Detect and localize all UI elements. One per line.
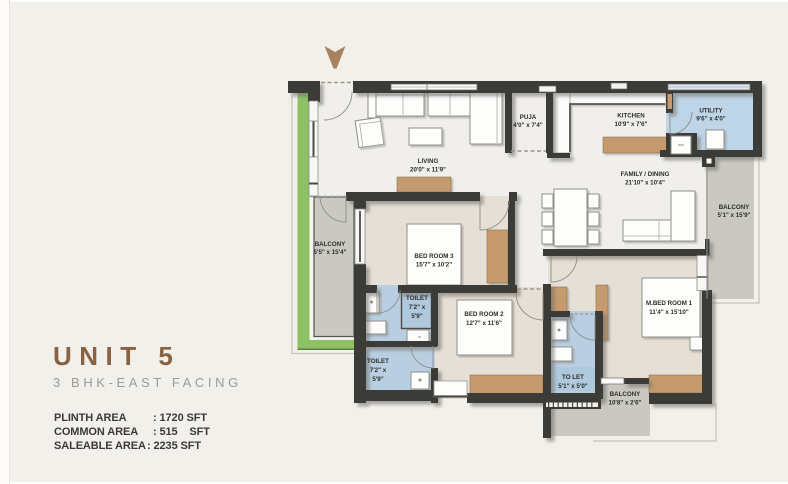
svg-text:10'9" x 7'6": 10'9" x 7'6" xyxy=(615,121,648,128)
svg-text:KITCHEN: KITCHEN xyxy=(617,113,645,120)
svg-text:FAMILY / DINING: FAMILY / DINING xyxy=(621,171,670,178)
svg-text:5'5" x 15'4": 5'5" x 15'4" xyxy=(314,249,347,256)
svg-text:10'8" x 2'6": 10'8" x 2'6" xyxy=(609,400,642,407)
svg-text:BED ROOM 2: BED ROOM 2 xyxy=(464,311,504,318)
svg-text:9'6" x 4'0": 9'6" x 4'0" xyxy=(696,116,726,123)
svg-text:BALCONY: BALCONY xyxy=(610,391,641,398)
svg-text:11'4" x 15'10": 11'4" x 15'10" xyxy=(649,309,689,316)
svg-text:12'7" x 11'6": 12'7" x 11'6" xyxy=(466,320,502,327)
svg-text:TO LET: TO LET xyxy=(562,374,584,381)
svg-text:15'7" x 10'2": 15'7" x 10'2" xyxy=(416,262,452,269)
svg-text:TOILET: TOILET xyxy=(367,358,389,365)
svg-text:20'0" x 11'9": 20'0" x 11'9" xyxy=(410,167,446,174)
svg-text:7'2" x: 7'2" x xyxy=(409,304,426,311)
svg-text:UTILITY: UTILITY xyxy=(699,108,723,115)
svg-text:LIVING: LIVING xyxy=(418,158,439,165)
svg-text:7'2" x: 7'2" x xyxy=(370,367,387,374)
svg-text:5'9": 5'9" xyxy=(411,313,422,320)
svg-text:21'10" x 10'4": 21'10" x 10'4" xyxy=(625,180,665,187)
svg-text:PUJA: PUJA xyxy=(520,114,537,121)
svg-text:TOILET: TOILET xyxy=(406,295,428,302)
svg-text:BALCONY: BALCONY xyxy=(315,241,346,248)
svg-text:4'0" x 7'4": 4'0" x 7'4" xyxy=(513,122,543,129)
svg-text:BALCONY: BALCONY xyxy=(719,204,750,211)
svg-text:5'1" x 5'0": 5'1" x 5'0" xyxy=(558,383,588,390)
svg-text:BED ROOM 3: BED ROOM 3 xyxy=(414,253,454,260)
svg-text:M.BED ROOM 1: M.BED ROOM 1 xyxy=(646,300,693,307)
svg-text:5'9": 5'9" xyxy=(372,376,383,383)
svg-text:5'1" x 15'9": 5'1" x 15'9" xyxy=(718,212,751,219)
